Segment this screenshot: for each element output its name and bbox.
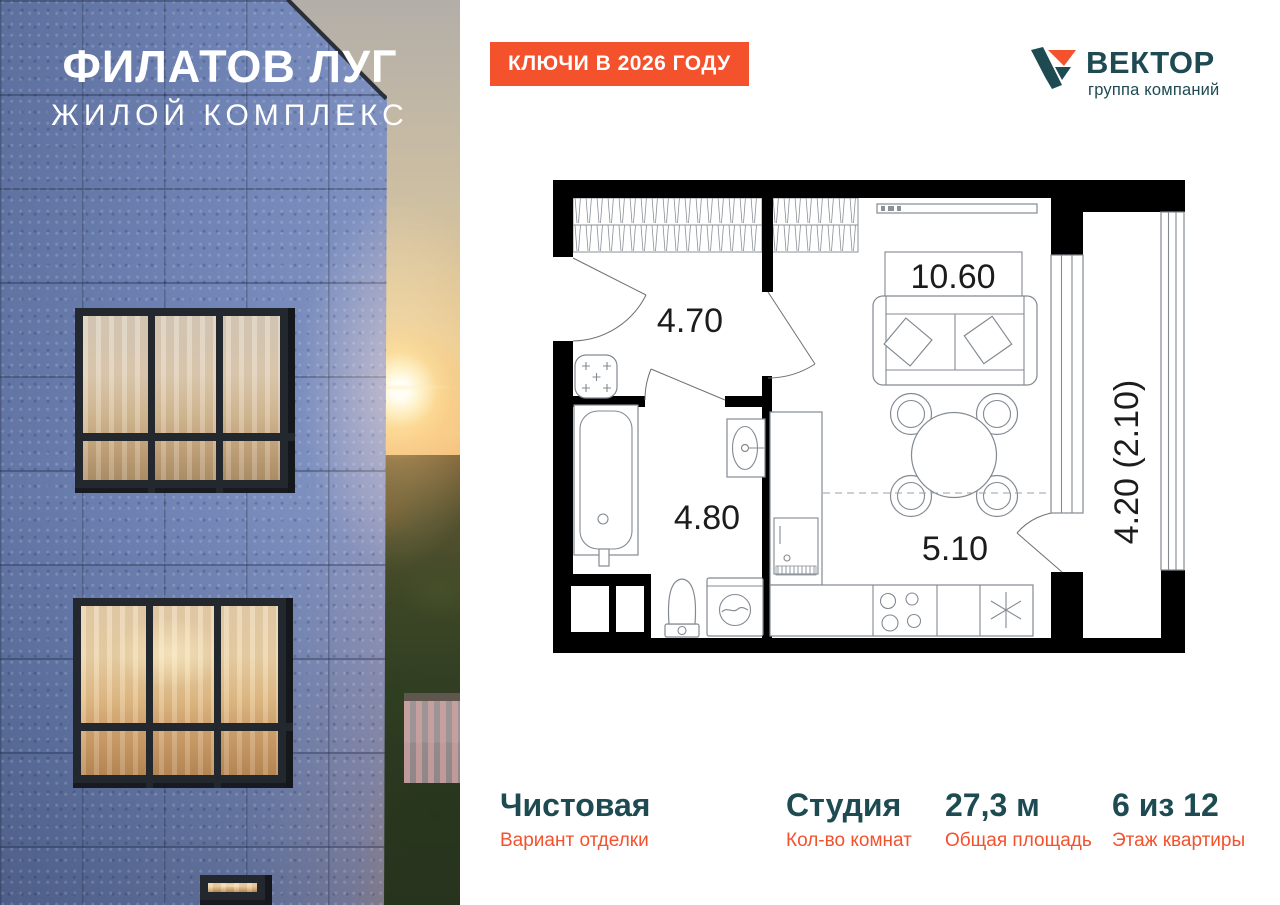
developer-tagline: группа компаний — [1088, 81, 1219, 100]
room-area-living: 10.60 — [910, 258, 995, 296]
bathroom-sink — [727, 419, 765, 477]
wardrobe-hatch — [573, 198, 858, 252]
building-photo: ФИЛАТОВ ЛУГ ЖИЛОЙ КОМПЛЕКС — [0, 0, 460, 905]
balcony-window — [1051, 255, 1083, 513]
room-area-kitchen: 5.10 — [922, 530, 988, 568]
balcony-glazing — [1161, 212, 1184, 570]
detail-value: Студия — [786, 788, 912, 823]
detail-area: 27,3 м Общая площадь — [945, 788, 1092, 852]
electric-panel-icon — [575, 355, 617, 398]
room-area-hallway: 4.70 — [657, 302, 723, 340]
dining-table — [891, 394, 1018, 517]
detail-rooms: Студия Кол-во комнат — [786, 788, 912, 852]
detail-value: 27,3 м — [945, 788, 1092, 823]
window-sill — [877, 204, 1037, 213]
room-area-balcony: 4.20 (2.10) — [1108, 380, 1146, 544]
detail-label: Вариант отделки — [500, 830, 650, 852]
detail-value: 6 из 12 — [1112, 788, 1245, 823]
window-transom — [73, 723, 293, 731]
detail-finish: Чистовая Вариант отделки — [500, 788, 650, 852]
window-mullion — [148, 308, 155, 493]
window-mullion — [216, 308, 223, 493]
toilet — [665, 579, 699, 637]
window-bottom-sliver — [200, 875, 272, 905]
washing-machine — [707, 578, 763, 636]
vector-logo-icon — [1031, 47, 1077, 89]
floor-plan: 4.70 10.60 4.80 5.10 4.20 (2.10) — [553, 178, 1185, 655]
keys-date-badge: КЛЮЧИ В 2026 ГОДУ — [490, 42, 749, 86]
detail-label: Этаж квартиры — [1112, 830, 1245, 852]
developer-logo: ВЕКТОР группа компаний — [1031, 45, 1251, 105]
project-title: ФИЛАТОВ ЛУГ — [0, 44, 460, 89]
detail-floor: 6 из 12 Этаж квартиры — [1112, 788, 1245, 852]
kitchen-counter — [770, 585, 1033, 636]
detail-value: Чистовая — [500, 788, 650, 823]
bathtub — [574, 405, 638, 566]
kitchen-cabinet — [770, 412, 822, 585]
window-mullion — [146, 598, 153, 788]
sofa — [873, 296, 1037, 385]
window-glass — [208, 883, 257, 892]
kindergarten-building — [404, 693, 460, 783]
project-subtitle: ЖИЛОЙ КОМПЛЕКС — [0, 99, 460, 133]
window-transom — [214, 598, 221, 788]
detail-label: Кол-во комнат — [786, 830, 912, 852]
floor-plan-drawing: 4.70 10.60 4.80 5.10 4.20 (2.10) — [553, 178, 1185, 655]
real-estate-flyer: ФИЛАТОВ ЛУГ ЖИЛОЙ КОМПЛЕКС КЛЮЧИ В 2026 … — [0, 0, 1280, 905]
room-area-bathroom: 4.80 — [674, 499, 740, 537]
detail-label: Общая площадь — [945, 830, 1092, 852]
developer-name: ВЕКТОР — [1086, 45, 1215, 81]
project-hero: ФИЛАТОВ ЛУГ ЖИЛОЙ КОМПЛЕКС — [0, 44, 460, 133]
sun-glow-overlay — [240, 130, 460, 690]
